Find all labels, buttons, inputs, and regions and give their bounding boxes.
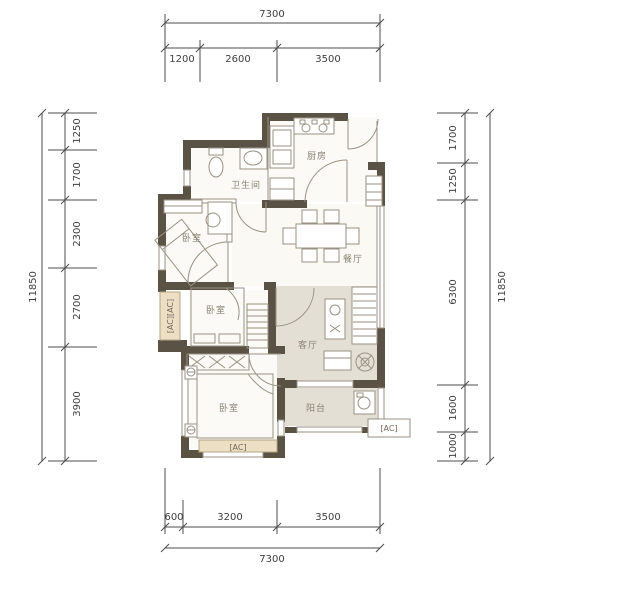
dim-right-seg-2: 1250 <box>448 168 459 193</box>
label-dining: 餐厅 <box>343 253 363 265</box>
dim-right-overall: 11850 <box>497 271 508 303</box>
dim-bottom-seg-3: 3500 <box>315 512 340 523</box>
label-living: 客厅 <box>298 339 318 351</box>
dim-right-seg-5: 1000 <box>448 433 459 458</box>
chair <box>302 210 317 223</box>
dimension-top: 7300 1200 2600 3500 <box>161 9 384 82</box>
label-bedroom-middle: 卧室 <box>206 304 226 316</box>
balcony-railing <box>297 427 362 432</box>
dim-bottom-seg-2: 3200 <box>217 512 242 523</box>
dim-top-seg-2: 2600 <box>225 54 250 65</box>
dim-bottom-overall: 7300 <box>259 554 284 565</box>
dimension-right: 1700 1250 6300 1600 1000 11850 <box>437 109 508 465</box>
chair <box>302 249 317 262</box>
balcony-slider <box>297 381 353 387</box>
balcony-west-window <box>278 420 284 436</box>
chair <box>324 249 339 262</box>
dim-top-seg-1: 1200 <box>169 54 194 65</box>
dim-left-seg-4: 2700 <box>72 294 83 319</box>
ac-label-bottom: [AC] <box>229 443 246 452</box>
chair <box>346 228 359 244</box>
dim-right-seg-1: 1700 <box>448 125 459 150</box>
dim-top-overall: 7300 <box>259 9 284 20</box>
dim-left-seg-3: 2300 <box>72 221 83 246</box>
label-bathroom: 卫生间 <box>231 179 261 191</box>
floor-plan-canvas: 7300 1200 2600 3500 11850 1250 1700 2300… <box>0 0 624 600</box>
dimension-left: 11850 1250 1700 2300 2700 3900 <box>28 109 97 465</box>
dim-left-seg-5: 3900 <box>72 391 83 416</box>
balcony-furniture <box>354 391 375 414</box>
chair <box>283 228 296 244</box>
ac-label-right: [AC] <box>380 424 397 433</box>
bathroom-window <box>184 170 190 186</box>
bedroom-bottom-south-window <box>203 452 263 457</box>
label-bedroom-bottom: 卧室 <box>219 402 239 414</box>
armchair <box>324 351 351 370</box>
dim-left-seg-2: 1700 <box>72 162 83 187</box>
entry-cabinet <box>366 176 382 206</box>
dim-right-seg-4: 1600 <box>448 395 459 420</box>
dim-left-overall: 11850 <box>28 271 39 303</box>
dining-table <box>296 224 346 248</box>
toilet <box>209 157 223 177</box>
chair <box>324 210 339 223</box>
dim-bottom-seg-1: 600 <box>164 512 183 523</box>
label-balcony: 阳台 <box>306 402 326 414</box>
dim-right-seg-3: 6300 <box>448 279 459 304</box>
ac-label-left: [AC][AC] <box>166 299 175 333</box>
dim-top-seg-3: 3500 <box>315 54 340 65</box>
floor-plan-page: 7300 1200 2600 3500 11850 1250 1700 2300… <box>0 0 624 600</box>
dimension-bottom: 600 3200 3500 7300 <box>161 468 384 565</box>
dim-left-seg-1: 1250 <box>72 118 83 143</box>
label-kitchen: 厨房 <box>307 150 327 162</box>
label-bedroom-top: 卧室 <box>182 232 202 244</box>
toilet-tank <box>209 148 223 155</box>
